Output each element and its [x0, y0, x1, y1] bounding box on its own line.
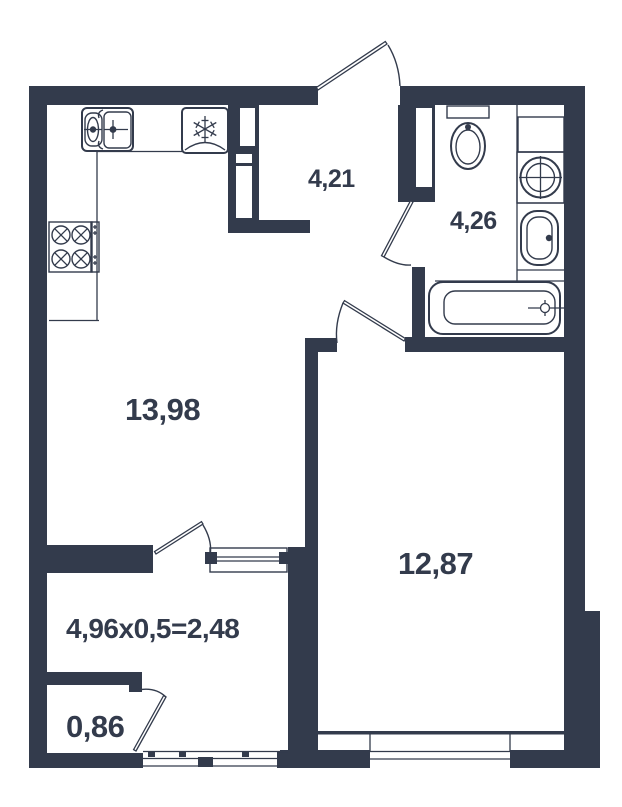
washbasin-icon: [521, 211, 558, 265]
bathroom-area-label: 4,26: [450, 209, 497, 234]
kitchen-counter: [49, 152, 182, 321]
floor-plan: 4,21 4,26 13,98 12,87 4,96x0,5=2,48 0,86: [0, 0, 622, 807]
window-loggia-partition: [205, 548, 288, 572]
loggia-glazing: [143, 751, 288, 767]
refrigerator-snowflake-icon: [182, 108, 228, 153]
balcony-door: [134, 689, 166, 751]
living-room-door: [336, 301, 405, 343]
vent-shaft: [236, 166, 252, 218]
washing-machine-icon: [517, 152, 564, 203]
vent-shaft: [416, 108, 432, 187]
loggia-door: [155, 522, 211, 554]
vent-shaft: [240, 108, 255, 146]
toilet-icon: [447, 106, 489, 169]
vent-shaft: [236, 154, 252, 163]
cabinet: [518, 117, 564, 152]
living-room-area-label: 12,87: [398, 548, 473, 579]
kitchen-living-area-label: 13,98: [125, 394, 200, 425]
entry-door: [316, 42, 400, 91]
loggia-area-label: 4,96x0,5=2,48: [66, 615, 239, 643]
bathroom-door: [382, 201, 414, 265]
hallway-area-label: 4,21: [308, 167, 355, 192]
bathtub-icon: [429, 282, 566, 334]
floor-plan-drawing: [0, 0, 622, 807]
window-living-room: [370, 734, 510, 759]
storage-area-label: 0,86: [66, 711, 124, 742]
kitchen-sink-icon: [82, 108, 133, 151]
stove-4-burner-icon: [49, 222, 99, 272]
